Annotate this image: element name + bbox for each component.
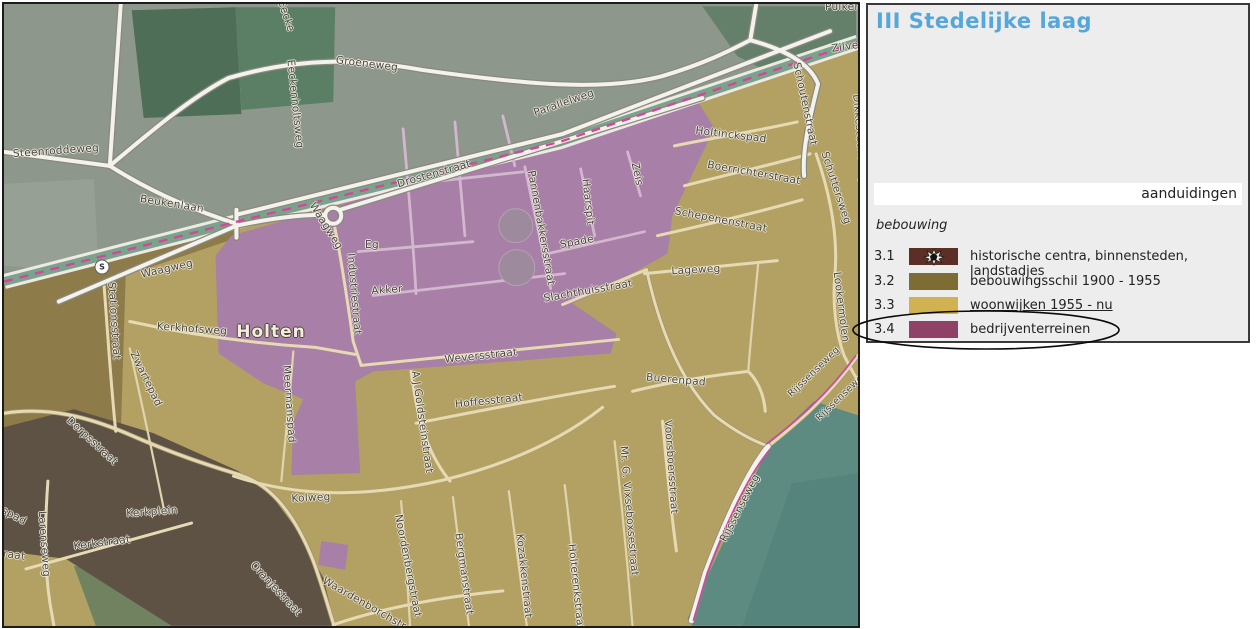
street-label: Zwartepad <box>128 350 165 409</box>
legend-label: bedrijventerreinen <box>970 322 1090 337</box>
street-label: Bergmanstraat <box>452 532 475 615</box>
street-label: A.J.Goldsteinstraat <box>409 370 435 474</box>
street-label: Pulker <box>825 2 859 13</box>
legend-code: 3.2 <box>874 274 895 289</box>
legend-label: woonwijken 1955 - nu <box>970 298 1113 313</box>
street-label: Meermanspad <box>280 365 297 444</box>
street-label: Parallelweg <box>532 87 596 119</box>
street-label: Kerkstraat <box>73 534 131 553</box>
street-label: Akker <box>371 283 403 297</box>
street-label: Rijssenseweg <box>814 369 860 424</box>
street-label: Holten <box>236 322 306 342</box>
legend-row-3-1: 3.1 historische centra, binnensteden, la… <box>868 246 1248 268</box>
street-label: Noordenbergstraat <box>392 514 424 619</box>
map-canvas: .rcase{stroke:#8a897f;stroke-width:6.5;f… <box>2 2 860 628</box>
street-label: Spade <box>559 233 595 251</box>
legend-swatch-bedrijventerreinen <box>909 321 958 338</box>
street-label: Larenseweg <box>36 511 53 578</box>
street-label: Schoutenstraat <box>790 61 819 146</box>
street-label: Holtinckspad <box>695 125 768 146</box>
street-label: Lookermolen <box>831 271 852 343</box>
legend-label: bebouwingsschil 1900 - 1955 <box>970 274 1161 289</box>
street-label: Kerkplein <box>126 504 178 520</box>
street-label: Mr. G. Vixseboxsestraat <box>617 445 640 576</box>
street-label: Kerkhofsweg <box>156 321 227 338</box>
street-label: Buerenpad <box>646 371 707 388</box>
historic-splat-icon <box>923 248 945 266</box>
street-label: Waagweg <box>140 257 194 281</box>
legend-title: III Stedelijke laag <box>876 9 1092 33</box>
street-label: Haarspit <box>580 178 597 226</box>
street-label: Voorsboersstraat <box>662 420 681 515</box>
street-label: Steenroddeweg <box>13 142 100 160</box>
legend-swatch-woonwijken <box>909 297 958 314</box>
legend-row-3-2: 3.2 bebouwingsschil 1900 - 1955 <box>868 271 1248 293</box>
legend-panel: III Stedelijke laag aanduidingen bebouwi… <box>866 3 1250 343</box>
street-label: Dorpsstraat <box>64 414 120 467</box>
street-label: Drostenstraat <box>396 158 472 191</box>
street-label: spad <box>2 504 28 527</box>
street-label: traat <box>2 547 26 563</box>
street-label: Zilve <box>831 39 860 55</box>
street-label: Kozakkenstraat <box>514 533 535 619</box>
legend-swatch-bebouwingsschil <box>909 273 958 290</box>
legend-code: 3.1 <box>874 249 895 264</box>
train-station-icon: S <box>95 260 110 275</box>
street-label: Waagweg <box>307 200 345 251</box>
legend-row-3-4: 3.4 bedrijventerreinen <box>868 319 1248 341</box>
page: { "legend": { "title": "III Stedelijke l… <box>0 0 1257 629</box>
street-label: Schepenenstraat <box>674 205 768 235</box>
street-label: Eeckenholtsweg <box>284 59 305 149</box>
street-label: Zeis <box>629 161 646 186</box>
street-label: Kolweg <box>291 491 331 505</box>
legend-code: 3.3 <box>874 298 895 313</box>
street-label: Pannenbakkersstraat <box>525 170 557 287</box>
street-label: Groeneweg <box>335 54 399 74</box>
street-label: Boerrichterstraat <box>706 159 801 187</box>
street-label: Rijssenseweg <box>786 345 842 400</box>
tab-aanduidingen: aanduidingen <box>874 183 1242 205</box>
street-label: Dikkesteensweg <box>850 94 860 185</box>
street-label: Hoffesstraat <box>454 391 523 410</box>
street-label: Schuttersweg <box>819 150 854 226</box>
street-label: Rijssenseweg <box>718 472 762 544</box>
street-label: Beukenlaan <box>139 193 205 215</box>
street-label: Weversstraat <box>444 346 518 366</box>
legend-section-bebouwing: bebouwing <box>876 218 947 233</box>
street-label: Eecke <box>275 2 296 33</box>
legend-row-3-3: 3.3 woonwijken 1955 - nu <box>868 295 1248 317</box>
street-label: Stationsstraat <box>105 282 122 361</box>
street-label: Oranjestraat <box>248 559 304 618</box>
street-label: Holterenkstraat <box>566 543 587 628</box>
legend-code: 3.4 <box>874 322 895 337</box>
street-label: Lageweg <box>671 263 721 278</box>
street-labels-layer: SteenroddewegBeukenlaanGroenewegEeckeEec… <box>4 4 858 626</box>
street-label: Industriestraat <box>344 253 363 335</box>
street-label: Eg <box>365 239 379 251</box>
legend-swatch-historic <box>909 248 958 265</box>
